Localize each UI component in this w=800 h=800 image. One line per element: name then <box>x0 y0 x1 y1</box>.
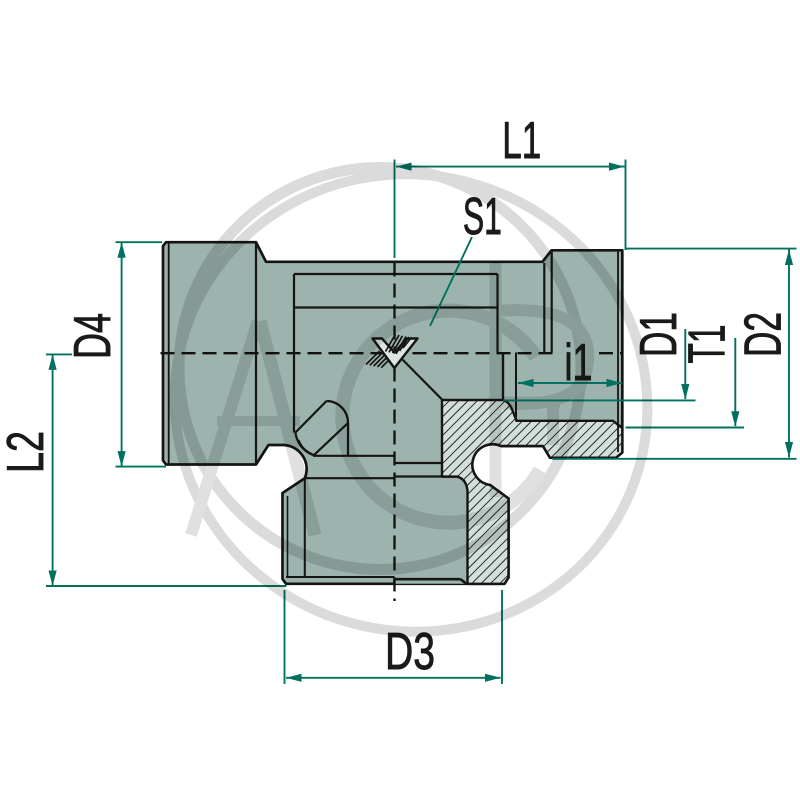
svg-text:L1: L1 <box>502 112 541 170</box>
svg-text:D4: D4 <box>64 313 122 359</box>
svg-text:T1: T1 <box>678 325 736 364</box>
svg-text:D2: D2 <box>735 312 793 357</box>
svg-text:L2: L2 <box>0 431 55 473</box>
